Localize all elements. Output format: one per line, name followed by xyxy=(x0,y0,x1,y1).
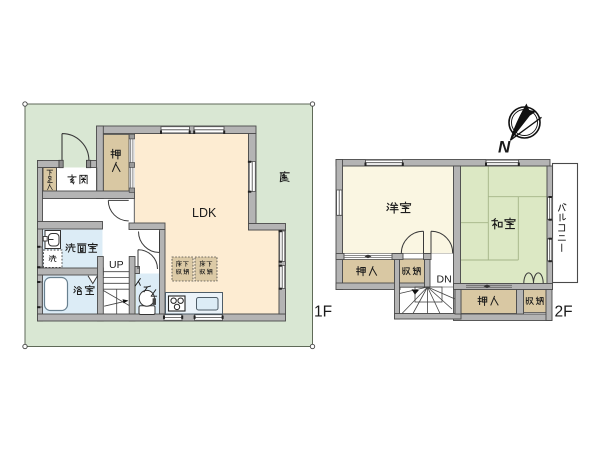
svg-text:1F: 1F xyxy=(314,304,332,321)
svg-text:UP: UP xyxy=(109,259,124,271)
svg-text:LDK: LDK xyxy=(192,206,217,220)
svg-text:N: N xyxy=(498,138,511,157)
svg-text:2F: 2F xyxy=(555,304,573,321)
svg-text:DN: DN xyxy=(437,274,452,286)
